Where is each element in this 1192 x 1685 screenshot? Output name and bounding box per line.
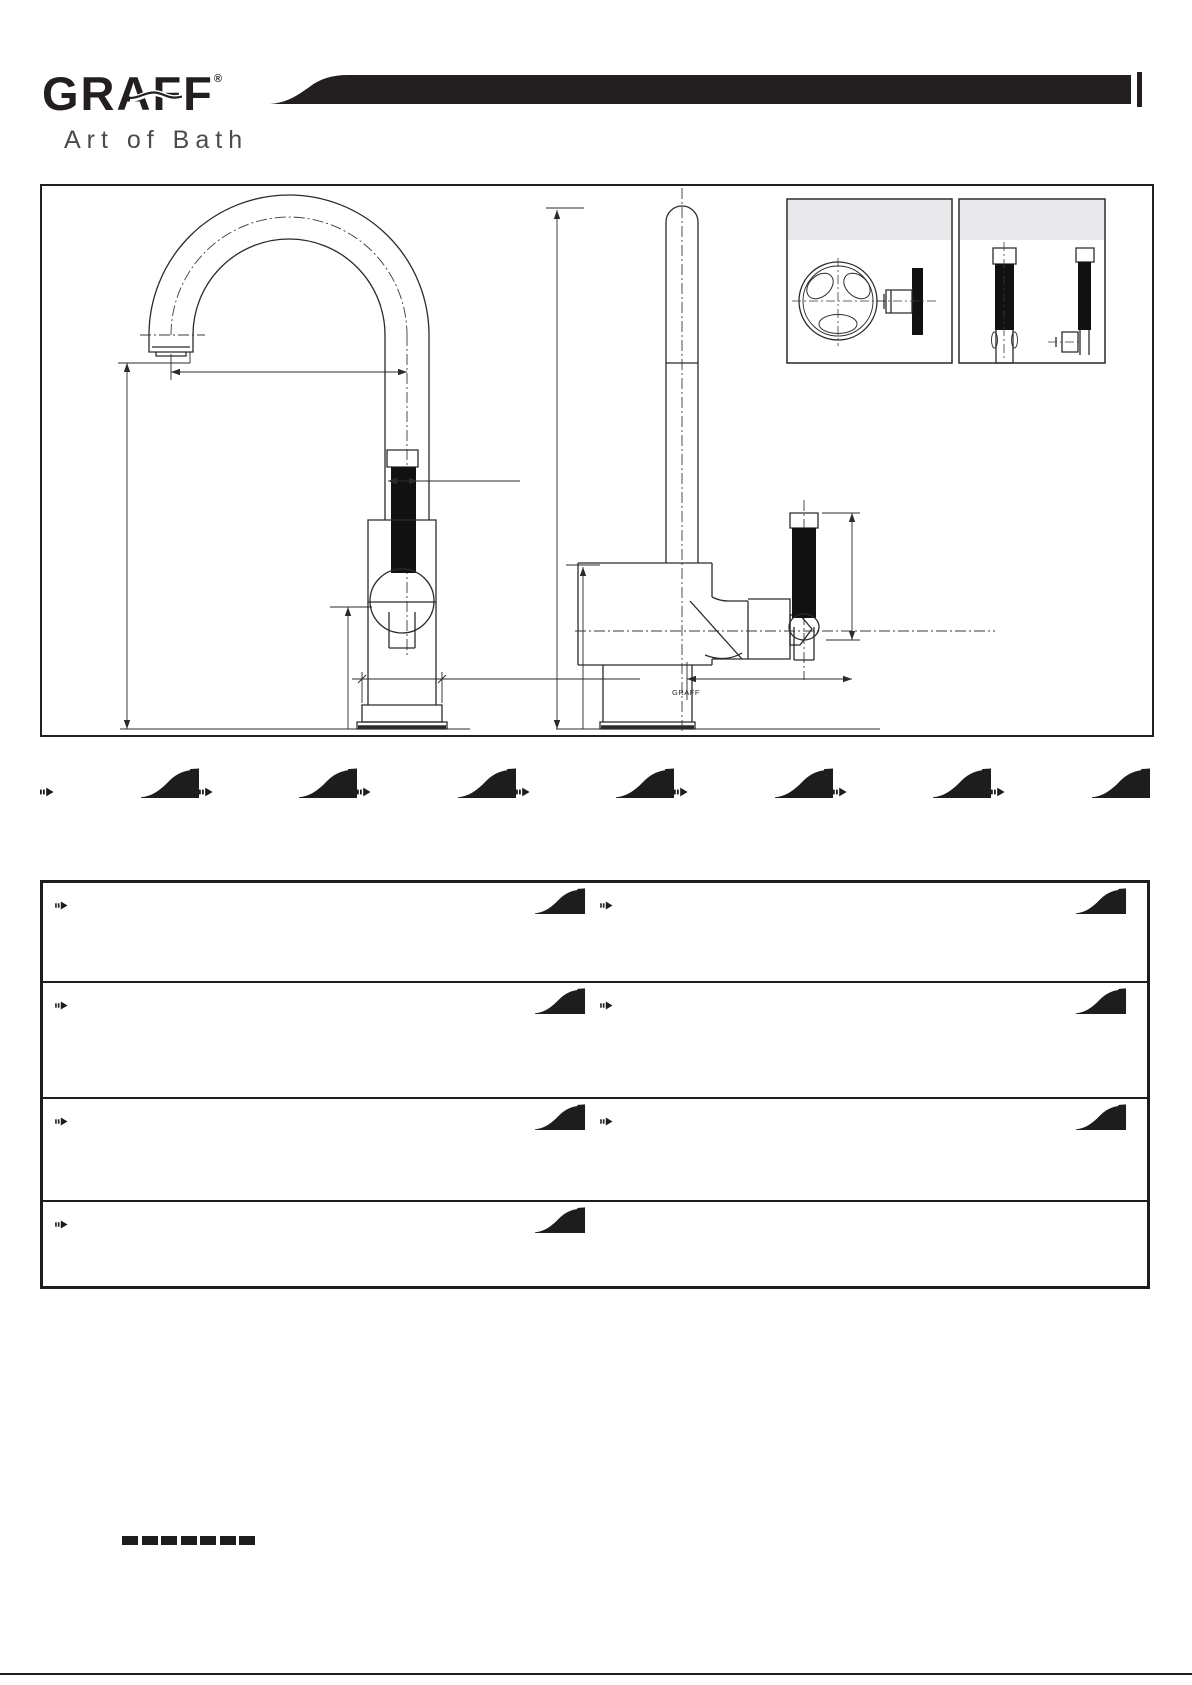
table-row [43, 983, 1147, 1099]
triple-arrow-icon [600, 1000, 613, 1011]
triple-arrow-icon [55, 1116, 68, 1127]
graff-logotype: GRAFF® [42, 70, 302, 117]
wave-swoosh-icon [141, 768, 199, 798]
registered-trademark: ® [214, 73, 222, 85]
cross-handle-detail-panel [787, 199, 952, 363]
technical-drawing-panel: GRAFF [40, 184, 1154, 737]
table-cell [588, 883, 1147, 981]
footer-dash [161, 1536, 177, 1545]
table-row [43, 883, 1147, 983]
body-engraving-label: GRAFF [672, 688, 700, 697]
footer-dash [142, 1536, 158, 1545]
lever-handle-detail-panel [959, 199, 1105, 363]
footer-dash-strip [122, 1536, 255, 1545]
logo-wave-icon [130, 90, 182, 104]
footer-dash [181, 1536, 197, 1545]
graff-logo: GRAFF® Art of Bath [42, 70, 302, 170]
wave-swoosh-icon [775, 768, 833, 798]
wave-swoosh-icon [534, 988, 586, 1014]
footer-dash [220, 1536, 236, 1545]
graff-logotype-text: GRAFF [42, 67, 214, 120]
table-cell [588, 1202, 1147, 1286]
divider-section [516, 752, 675, 804]
wave-swoosh-icon [299, 768, 357, 798]
panel-header-strip [788, 200, 951, 240]
triple-arrow-icon [600, 900, 613, 911]
table-cell [588, 983, 1147, 1097]
footer-dash [200, 1536, 216, 1545]
triple-arrow-icon [991, 786, 1005, 798]
divider-section [357, 752, 516, 804]
triple-arrow-icon [55, 900, 68, 911]
front-elevation-view [120, 195, 470, 729]
banner-end-tick [1137, 72, 1142, 107]
table-row [43, 1202, 1147, 1286]
wave-swoosh-icon [616, 768, 674, 798]
triple-arrow-icon [674, 786, 688, 798]
wave-swoosh-icon [458, 768, 516, 798]
wave-swoosh-icon [534, 1207, 586, 1233]
triple-arrow-icon [40, 786, 54, 798]
footer-dash [239, 1536, 255, 1545]
wave-swoosh-icon [1092, 768, 1150, 798]
faucet-technical-drawing: GRAFF [42, 186, 1148, 731]
triple-arrow-icon [600, 1116, 613, 1127]
triple-arrow-icon [199, 786, 213, 798]
table-cell [43, 1099, 588, 1200]
table-cell [43, 883, 588, 981]
wave-swoosh-icon [534, 1104, 586, 1130]
divider-section [991, 752, 1150, 804]
brand-tagline: Art of Bath [64, 126, 248, 155]
triple-arrow-icon [516, 786, 530, 798]
triple-arrow-icon [55, 1219, 68, 1230]
wave-swoosh-icon [534, 888, 586, 914]
header-banner [270, 74, 1131, 105]
wave-swoosh-icon [933, 768, 991, 798]
page-bottom-rule [0, 1673, 1192, 1675]
divider-section [833, 752, 992, 804]
triple-arrow-icon [833, 786, 847, 798]
wave-swoosh-icon [1075, 988, 1127, 1014]
triple-arrow-icon [357, 786, 371, 798]
wave-swoosh-icon [1075, 888, 1127, 914]
table-cell [588, 1099, 1147, 1200]
table-cell [43, 1202, 588, 1286]
divider-section [199, 752, 358, 804]
table-cell [43, 983, 588, 1097]
wave-swoosh-icon [1075, 1104, 1127, 1130]
wave-divider-row [40, 752, 1150, 804]
divider-section [40, 752, 199, 804]
triple-arrow-icon [55, 1000, 68, 1011]
spec-sheet-page: GRAFF® Art of Bath [0, 0, 1192, 1685]
panel-header-strip [960, 200, 1104, 240]
footer-dash [122, 1536, 138, 1545]
front-view-dimensions [118, 352, 640, 729]
divider-section [674, 752, 833, 804]
specification-table [40, 880, 1150, 1289]
table-row [43, 1099, 1147, 1202]
